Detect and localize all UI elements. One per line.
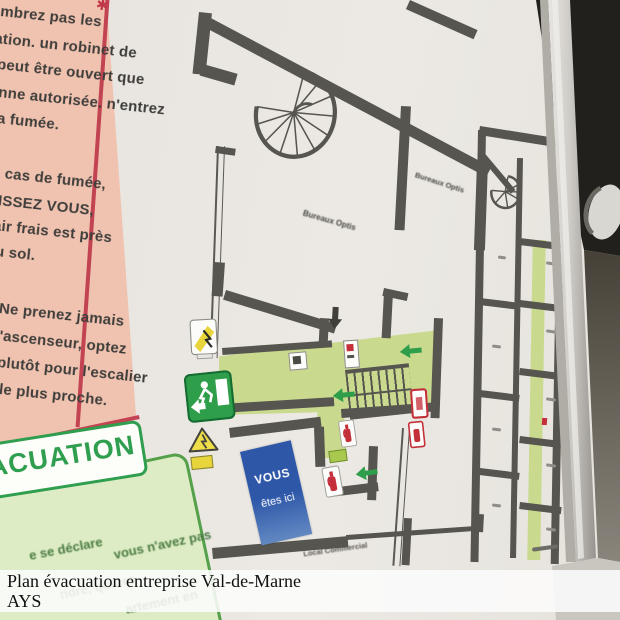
room-label: Bureaux Optis [302,209,357,233]
inset-room-label [492,344,501,348]
alarm-icon [288,351,308,371]
photo-dark-corner [536,0,620,256]
fire-extinguisher-icon [321,465,345,504]
wall-background [584,250,620,562]
wall-segment [200,64,238,85]
inset-wall [479,126,569,149]
inset-wall [551,146,566,564]
evacuation-arrow [399,343,423,364]
instruction-line: u sol. [0,243,36,264]
caption-bar: Plan évacuation entreprise Val-de-Marne … [0,570,620,612]
inset-room-label [546,329,556,333]
fire-instruction-line: vous n'avez pas [112,527,212,562]
inset-wall [470,130,486,562]
exit-left-sign [183,370,236,430]
metal-clip [580,180,620,243]
evacuation-arrow [332,387,356,408]
wall-segment [202,16,491,177]
evacuation-title: ACUATION [0,430,137,484]
warning-tag [190,455,213,470]
electrical-cutoff-icon [189,317,219,365]
evacuation-plan-photo: { "caption": { "title": "Plan évacuation… [0,0,620,620]
caption-title: Plan évacuation entreprise Val-de-Marne [7,571,301,592]
manual-callpoint-icon [343,340,360,369]
inset-room-label [492,503,501,507]
you-are-here-line2: êtes ici [251,489,304,512]
wall-segment [229,417,322,438]
inset-corridor [527,240,546,560]
room-label: Bureaux Optis [414,170,466,194]
fire-extinguisher-icon [407,420,426,453]
you-are-here-marker: VOUS êtes ici [240,440,312,545]
wall-segment [406,0,478,39]
fire-instruction-line: e se déclare [28,534,104,563]
spiral-staircase [487,170,526,212]
inset-room-label [546,397,556,401]
inset-room-label [546,527,556,531]
inset-wall [510,158,523,558]
fire-extinguisher-icon [338,419,358,453]
inset-extinguisher-dot [542,418,547,425]
straight-staircase [345,363,414,419]
wall-segment [314,427,325,467]
evacuation-arrow [355,465,379,487]
you-are-here-line1: VOUS [245,464,299,489]
spiral-staircase [240,52,351,171]
inset-room-label [546,261,556,265]
wall-segment [212,262,225,297]
inset-room-label [498,255,506,259]
caption-org: AYS [7,591,41,612]
fire-hose-icon [410,387,429,424]
down-arrow [327,306,342,336]
inset-room-label [492,427,501,431]
wall-segment [382,292,393,338]
inset-room-label [546,463,556,467]
route-tag [328,449,347,463]
warning-triangle-icon [187,425,219,459]
wall-segment [402,518,412,565]
